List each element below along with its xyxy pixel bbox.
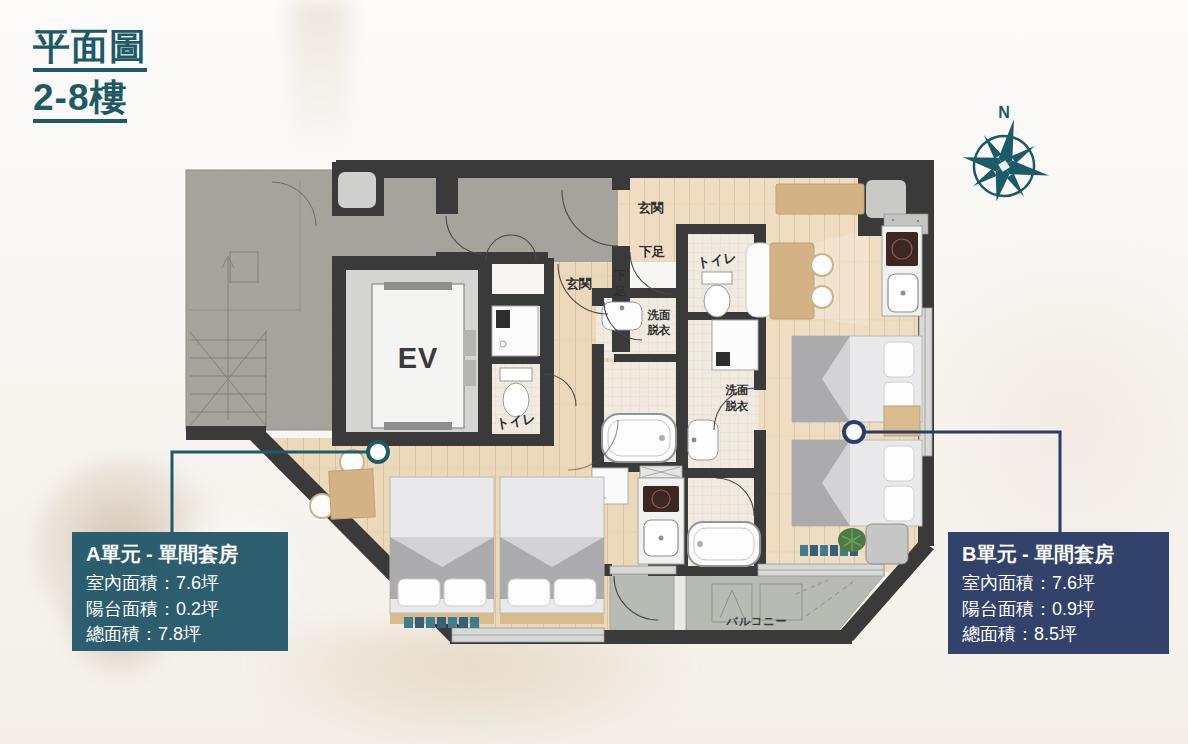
compass-north-label: N bbox=[998, 104, 1010, 121]
compass-rose-icon: N bbox=[948, 94, 1060, 216]
unit-b-total-area: 總面積：8.5坪 bbox=[962, 622, 1155, 648]
label-washroom-a-2: 脱衣 bbox=[648, 325, 671, 337]
unit-a-balcony-area: 陽台面積：0.2坪 bbox=[86, 597, 274, 623]
label-genkan-b: 玄関 bbox=[638, 201, 664, 214]
floorplan-page: { "header": { "title_line1": "平面圖", "tit… bbox=[0, 0, 1188, 744]
unit-a-total-area: 總面積：7.8坪 bbox=[86, 622, 274, 648]
unit-b-interior-area: 室內面積：7.6坪 bbox=[962, 571, 1155, 597]
label-geta-a-2: 足 bbox=[614, 286, 626, 298]
label-balcony: バルコニー bbox=[726, 616, 787, 627]
unit-b-card: B單元 - 單間套房 室內面積：7.6坪 陽台面積：0.9坪 總面積：8.5坪 bbox=[948, 532, 1169, 654]
label-washroom-b-2: 脱衣 bbox=[726, 401, 749, 413]
unit-b-balcony-area: 陽台面積：0.9坪 bbox=[962, 597, 1155, 623]
page-title: 平面圖 2-8樓 bbox=[33, 28, 147, 123]
unit-a-interior-area: 室內面積：7.6坪 bbox=[86, 571, 274, 597]
label-geta-b: 下足 bbox=[639, 245, 665, 258]
label-washroom-b-1: 洗面 bbox=[726, 385, 749, 397]
elevator-label: EV bbox=[398, 344, 439, 373]
unit-b-title: B單元 - 單間套房 bbox=[962, 541, 1155, 568]
marker-unit-b bbox=[844, 422, 864, 442]
label-genkan-a: 玄関 bbox=[566, 277, 592, 290]
marker-unit-a bbox=[368, 442, 388, 462]
unit-a-card: A單元 - 單間套房 室內面積：7.6坪 陽台面積：0.2坪 總面積：7.8坪 bbox=[72, 532, 288, 651]
compass: N bbox=[948, 94, 1060, 216]
unit-a-title: A單元 - 單間套房 bbox=[86, 541, 274, 568]
label-washroom-a-1: 洗面 bbox=[648, 310, 671, 322]
label-geta-a-1: 下 bbox=[614, 270, 626, 282]
ac-pad bbox=[866, 524, 908, 564]
title-line-1: 平面圖 bbox=[33, 28, 147, 72]
title-line-2: 2-8樓 bbox=[33, 79, 127, 123]
plant bbox=[838, 528, 866, 552]
